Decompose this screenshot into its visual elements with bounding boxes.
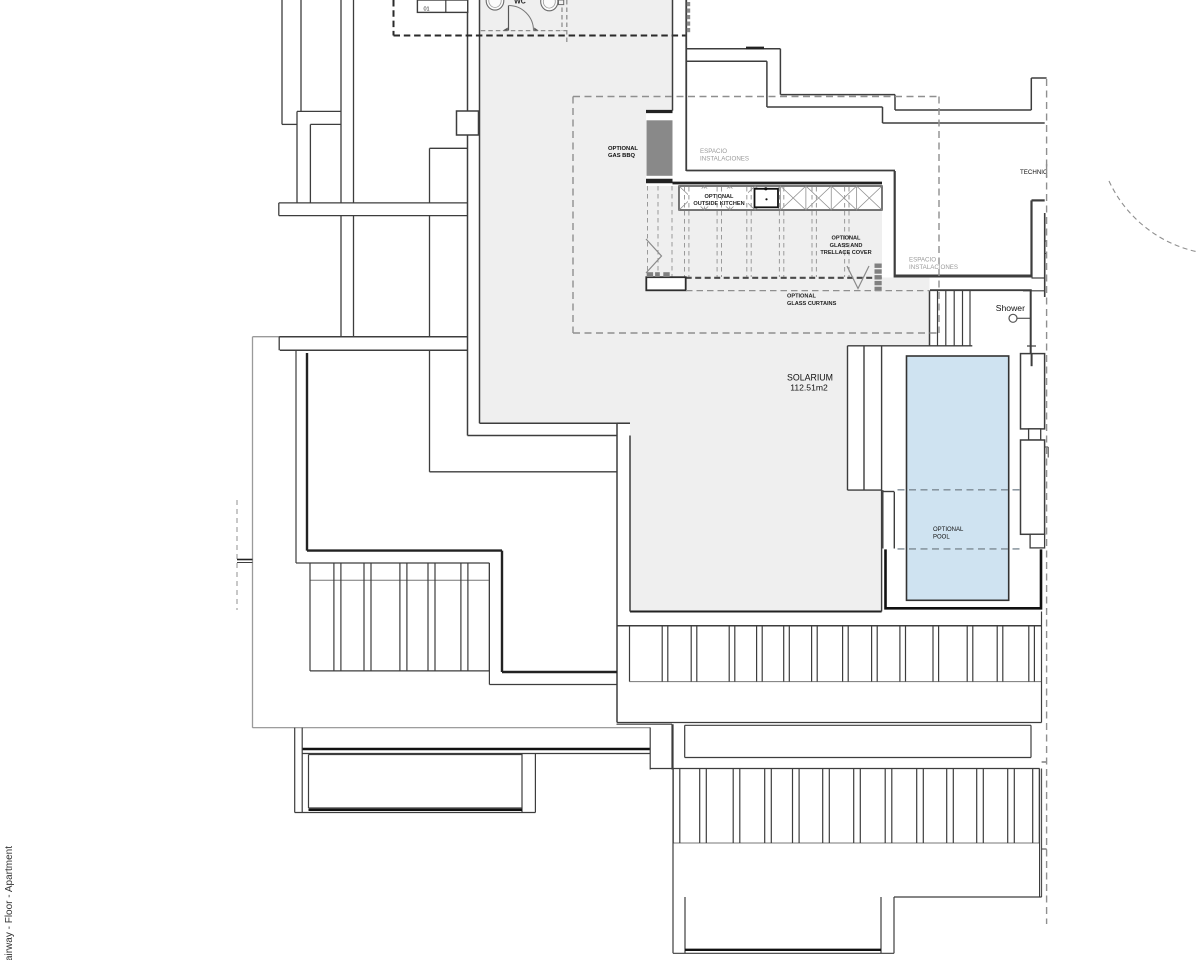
svg-text:OUTSIDE KITCHEN: OUTSIDE KITCHEN — [693, 201, 744, 207]
svg-text:OPTIONAL: OPTIONAL — [608, 146, 638, 152]
svg-text:OPTIONAL: OPTIONAL — [832, 236, 861, 242]
svg-text:112.51m2: 112.51m2 — [790, 383, 828, 393]
svg-text:GLASS CURTAINS: GLASS CURTAINS — [787, 301, 837, 307]
svg-text:INSTALACIONES: INSTALACIONES — [700, 156, 749, 163]
svg-text:POOL: POOL — [933, 535, 950, 541]
svg-text:OPTIONAL: OPTIONAL — [787, 294, 816, 300]
svg-text:WC: WC — [514, 0, 526, 6]
svg-text:01: 01 — [424, 6, 430, 12]
svg-text:INSTALACIONES: INSTALACIONES — [909, 264, 958, 271]
svg-text:TRELLACE COVER: TRELLACE COVER — [820, 250, 871, 256]
svg-text:ESPACIO: ESPACIO — [909, 257, 936, 264]
svg-text:OPTIONAL: OPTIONAL — [933, 527, 964, 533]
svg-text:ESPACIO: ESPACIO — [700, 148, 727, 155]
svg-text:SOLARIUM: SOLARIUM — [787, 373, 833, 383]
svg-text:GLASS AND: GLASS AND — [830, 243, 863, 249]
svg-text:Shower: Shower — [996, 303, 1025, 313]
svg-text:GAS BBQ: GAS BBQ — [608, 153, 636, 159]
svg-text:OPTIONAL: OPTIONAL — [705, 194, 734, 200]
svg-text:Stairway - Floor - Apartment: Stairway - Floor - Apartment — [4, 846, 15, 960]
